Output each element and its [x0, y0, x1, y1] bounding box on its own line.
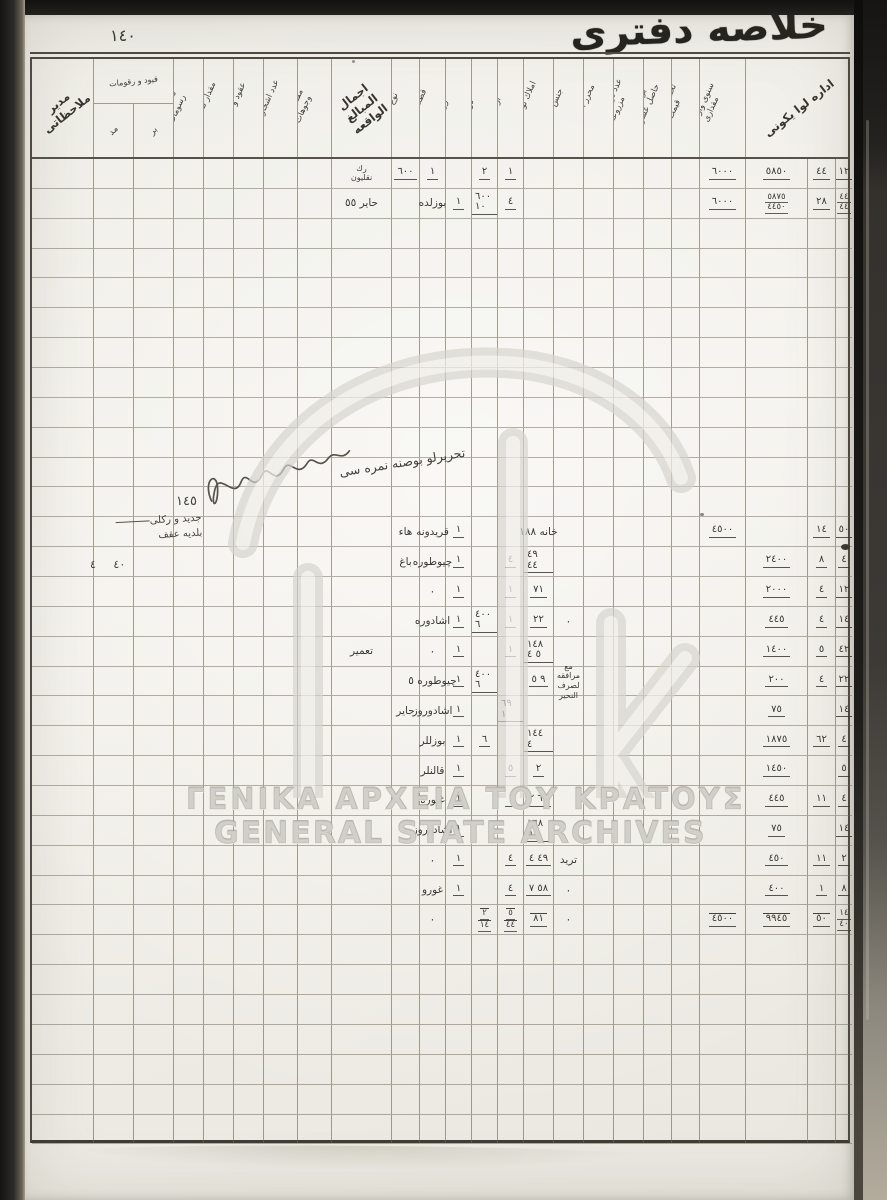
table-cell [174, 607, 204, 637]
table-cell [700, 338, 746, 368]
table-cell [420, 368, 446, 398]
table-cell: ١ [446, 637, 472, 667]
table-cell [584, 308, 614, 338]
table-cell [584, 398, 614, 428]
table-cell [584, 637, 614, 667]
table-cell [614, 756, 644, 786]
table-cell [498, 935, 524, 965]
table-cell [332, 219, 392, 249]
table-cell [584, 756, 614, 786]
table-cell: ١٤٨ ٥ ٤ [524, 637, 554, 667]
table-cell: ٦٠٠ [392, 159, 420, 189]
table-cell [746, 278, 808, 308]
table-cell [332, 577, 392, 607]
table-cell [298, 189, 332, 219]
table-cell [700, 1115, 746, 1145]
table-cell [584, 517, 614, 547]
table-cell [264, 846, 298, 876]
table-cell [392, 368, 420, 398]
table-cell [446, 1025, 472, 1055]
table-cell [174, 1055, 204, 1085]
table-cell [94, 159, 134, 189]
table-cell [746, 398, 808, 428]
table-cell [672, 1085, 700, 1115]
table-cell [264, 1115, 298, 1145]
table-cell [332, 308, 392, 338]
table-cell: ١٤ [836, 607, 852, 637]
table-cell [264, 995, 298, 1025]
table-cell [672, 1115, 700, 1145]
table-cell [264, 1025, 298, 1055]
table-cell [472, 1055, 498, 1085]
table-cell [234, 159, 264, 189]
table-cell [836, 487, 852, 517]
table-cell [700, 577, 746, 607]
table-cell [332, 368, 392, 398]
table-cell [746, 517, 808, 547]
column-subheader: مد [94, 104, 134, 157]
table-cell [498, 249, 524, 279]
table-cell [700, 487, 746, 517]
table-cell: ١ [498, 577, 524, 607]
table-cell [524, 219, 554, 249]
table-cell [836, 368, 852, 398]
table-cell [298, 249, 332, 279]
table-cell [264, 935, 298, 965]
table-cell: حاير ٥٥ [332, 189, 392, 219]
table-cell [204, 368, 234, 398]
table-cell [174, 846, 204, 876]
table-cell [584, 428, 614, 458]
table-cell [746, 965, 808, 995]
table-cell [332, 786, 392, 816]
column-header: مقدار تقسيمات [204, 59, 234, 157]
table-cell [332, 278, 392, 308]
table-cell: ١٢ [836, 577, 852, 607]
table-cell [554, 726, 584, 756]
table-cell [446, 308, 472, 338]
table-cell: ٧٥ [746, 696, 808, 726]
table-cell [264, 1085, 298, 1115]
table-cell [298, 159, 332, 189]
table-cell [298, 278, 332, 308]
table-cell [746, 995, 808, 1025]
table-cell [420, 458, 446, 488]
column-header: عدد اشجار زيتون [264, 59, 298, 157]
table-cell [836, 428, 852, 458]
table-cell: ٦٠٠٠ [700, 159, 746, 189]
table-cell [234, 696, 264, 726]
table-cell: ٤٠٠ ٦ [472, 607, 498, 637]
table-cell [204, 756, 234, 786]
table-cell: ٠ [420, 577, 446, 607]
table-cell [298, 1085, 332, 1115]
table-cell: اشادوروز [420, 696, 446, 726]
table-cell [524, 965, 554, 995]
table-cell [614, 1025, 644, 1055]
table-cell [204, 249, 234, 279]
table-cell [234, 786, 264, 816]
table-cell [614, 637, 644, 667]
table-cell [134, 667, 174, 697]
table-cell [174, 1085, 204, 1115]
table-cell [134, 1115, 174, 1145]
table-cell [644, 368, 672, 398]
table-cell [94, 219, 134, 249]
table-cell [134, 577, 174, 607]
table-cell [134, 786, 174, 816]
table-cell: ٢٢ [836, 667, 852, 697]
table-cell [472, 1115, 498, 1145]
table-cell [332, 547, 392, 577]
table-cell: ١ [446, 189, 472, 219]
table-cell [204, 965, 234, 995]
column-header: تخمين اولنان قيمت [672, 59, 700, 157]
table-cell [298, 219, 332, 249]
table-cell [298, 756, 332, 786]
table-cell: مع مرافقه لصرف النحير [554, 667, 584, 697]
table-cell: ٤ [808, 667, 836, 697]
table-cell [32, 159, 94, 189]
table-cell [94, 1115, 134, 1145]
table-cell [32, 816, 94, 846]
table-cell [420, 278, 446, 308]
table-cell: ١٦٨ ٥ [524, 816, 554, 846]
table-cell [134, 816, 174, 846]
table-cell [134, 995, 174, 1025]
table-cell [94, 308, 134, 338]
table-cell [32, 428, 94, 458]
table-cell [94, 398, 134, 428]
table-cell [204, 816, 234, 846]
table-cell [524, 159, 554, 189]
ink-speck [841, 544, 850, 550]
table-cell [672, 219, 700, 249]
table-cell [446, 428, 472, 458]
table-cell [234, 995, 264, 1025]
table-cell: ١٤٠٠ [746, 637, 808, 667]
table-cell [392, 249, 420, 279]
table-cell [264, 398, 298, 428]
table-cell [524, 1115, 554, 1145]
table-cell [32, 965, 94, 995]
table-cell [94, 756, 134, 786]
table-cell [204, 935, 234, 965]
table-cell [700, 428, 746, 458]
table-cell [298, 905, 332, 935]
table-cell [174, 726, 204, 756]
table-cell [644, 667, 672, 697]
table-cell [614, 458, 644, 488]
table-cell [392, 726, 420, 756]
table-cell: ٢ [472, 159, 498, 189]
table-cell [134, 1025, 174, 1055]
table-cell: ٥٨٧٥٤٤٥٠ [746, 189, 808, 219]
table-cell [554, 995, 584, 1025]
table-cell [746, 1055, 808, 1085]
table-cell [204, 398, 234, 428]
table-cell [584, 876, 614, 906]
table-cell [808, 487, 836, 517]
table-cell [174, 487, 204, 517]
table-cell [94, 667, 134, 697]
table-cell [420, 398, 446, 428]
table-cell [584, 965, 614, 995]
table-cell: چيوطوره [420, 547, 446, 577]
table-cell [672, 816, 700, 846]
table-cell: ٩٩٤٥ [746, 905, 808, 935]
scanned-ledger-page: خلاصه دفترى ١٤٠ مدير ملاحظاتىقيود و رقوم… [0, 0, 887, 1200]
table-cell [644, 1025, 672, 1055]
table-cell [644, 428, 672, 458]
table-cell [644, 607, 672, 637]
table-cell [32, 189, 94, 219]
table-cell [446, 398, 472, 428]
column-header: نوع محل [392, 59, 420, 157]
table-cell [584, 547, 614, 577]
table-cell [298, 816, 332, 846]
table-cell [614, 1055, 644, 1085]
scanner-edge-top [0, 0, 887, 15]
table-cell [672, 876, 700, 906]
table-cell: ٨١ [524, 905, 554, 935]
table-cell: ٥٠ [836, 517, 852, 547]
table-cell [472, 517, 498, 547]
table-cell [472, 756, 498, 786]
table-cell [700, 219, 746, 249]
table-cell [584, 786, 614, 816]
table-cell: ٤ [836, 547, 852, 577]
table-cell [472, 278, 498, 308]
table-cell [644, 308, 672, 338]
table-cell [134, 398, 174, 428]
table-cell [94, 637, 134, 667]
table-cell [672, 1055, 700, 1085]
table-cell: ٤ [498, 189, 524, 219]
table-cell [204, 696, 234, 726]
table-cell [808, 1115, 836, 1145]
table-cell [808, 249, 836, 279]
table-cell [234, 726, 264, 756]
table-cell [204, 876, 234, 906]
table-cell [498, 398, 524, 428]
table-cell [614, 995, 644, 1025]
table-cell [264, 1055, 298, 1085]
table-cell [32, 219, 94, 249]
table-cell [498, 278, 524, 308]
table-cell: ٩ ٥ [524, 667, 554, 697]
table-cell [174, 159, 204, 189]
table-cell [808, 278, 836, 308]
table-cell [264, 696, 298, 726]
table-cell [524, 1085, 554, 1115]
table-cell: ١ [498, 637, 524, 667]
table-cell [32, 278, 94, 308]
table-cell [332, 667, 392, 697]
table-cell [472, 965, 498, 995]
table-cell [204, 786, 234, 816]
table-cell [32, 458, 94, 488]
table-cell [472, 458, 498, 488]
table-cell [94, 189, 134, 219]
table-cell [498, 1085, 524, 1115]
table-cell [472, 487, 498, 517]
table-cell [234, 278, 264, 308]
table-cell [554, 696, 584, 726]
table-cell [332, 249, 392, 279]
table-cell: ١ [446, 756, 472, 786]
table-cell [614, 935, 644, 965]
table-cell [32, 398, 94, 428]
table-cell [524, 487, 554, 517]
table-cell [234, 756, 264, 786]
table-cell [264, 278, 298, 308]
table-cell [234, 1115, 264, 1145]
table-cell [644, 726, 672, 756]
table-cell [524, 935, 554, 965]
table-cell: ٧١ [524, 577, 554, 607]
table-cell [498, 1025, 524, 1055]
table-cell [32, 905, 94, 935]
table-cell [584, 159, 614, 189]
table-cell [700, 1085, 746, 1115]
table-cell [584, 905, 614, 935]
table-cell: ١١ [808, 786, 836, 816]
table-cell: ٥٨٥٠ [746, 159, 808, 189]
table-cell: ٦٩ ١ [498, 696, 524, 726]
table-cell [644, 876, 672, 906]
table-cell [264, 607, 298, 637]
table-cell [644, 935, 672, 965]
table-cell: ٤٥٠٠ [700, 905, 746, 935]
table-cell: ١٤٤ ٤ [524, 726, 554, 756]
table-cell [32, 368, 94, 398]
table-cell [332, 398, 392, 428]
table-cell [746, 308, 808, 338]
table-cell [836, 1085, 852, 1115]
table-cell [264, 637, 298, 667]
table-cell [174, 1025, 204, 1055]
table-cell [94, 726, 134, 756]
table-cell [614, 816, 644, 846]
table-cell [644, 965, 672, 995]
table-cell [498, 667, 524, 697]
table-cell [746, 487, 808, 517]
table-cell [234, 905, 264, 935]
table-cell [672, 726, 700, 756]
table-cell: ٠ [554, 905, 584, 935]
table-cell [134, 1055, 174, 1085]
table-cell [134, 368, 174, 398]
table-cell [614, 1085, 644, 1115]
table-cell [498, 338, 524, 368]
table-cell [392, 1025, 420, 1055]
table-cell [808, 398, 836, 428]
table-cell: ٢٠٠ [746, 667, 808, 697]
table-cell [94, 965, 134, 995]
table-cell [392, 1085, 420, 1115]
table-cell: ٤٤ [808, 159, 836, 189]
table-cell [614, 278, 644, 308]
table-cell [134, 696, 174, 726]
table-cell [174, 547, 204, 577]
table-cell [672, 547, 700, 577]
table-cell [134, 1085, 174, 1115]
table-cell [32, 1025, 94, 1055]
table-cell [392, 338, 420, 368]
table-cell: ٦ [472, 726, 498, 756]
table-cell [836, 1115, 852, 1145]
table-cell [174, 189, 204, 219]
table-cell [614, 905, 644, 935]
table-cell: ١٤٥٠ [746, 756, 808, 786]
table-header: مدير ملاحظاتىقيود و رقوماتمدبرتكاليف و ر… [32, 59, 848, 159]
table-cell [392, 189, 420, 219]
table-cell [672, 965, 700, 995]
table-cell [264, 786, 298, 816]
table-cell: ٠ [420, 905, 446, 935]
table-cell [498, 816, 524, 846]
table-cell [644, 786, 672, 816]
table-cell [204, 726, 234, 756]
table-cell [584, 219, 614, 249]
table-cell [234, 308, 264, 338]
table-cell [614, 577, 644, 607]
table-cell [94, 1055, 134, 1085]
table-cell [332, 1085, 392, 1115]
table-cell [446, 1055, 472, 1085]
table-cell [836, 935, 852, 965]
table-cell [808, 935, 836, 965]
table-cell [134, 637, 174, 667]
table-cell [298, 517, 332, 547]
table-cell [672, 607, 700, 637]
table-cell [174, 816, 204, 846]
table-cell [584, 607, 614, 637]
table-cell [554, 1085, 584, 1115]
table-cell [700, 876, 746, 906]
table-cell: ١ [498, 786, 524, 816]
table-cell [472, 428, 498, 458]
table-cell: ١ [808, 876, 836, 906]
table-cell [32, 577, 94, 607]
table-cell [298, 577, 332, 607]
table-cell [472, 696, 498, 726]
table-cell [332, 696, 392, 726]
table-cell [298, 786, 332, 816]
table-cell [332, 1115, 392, 1145]
table-cell [584, 995, 614, 1025]
table-cell: ١٨٧٥ [746, 726, 808, 756]
table-cell: ٤ [836, 786, 852, 816]
table-cell [584, 1055, 614, 1085]
table-cell [174, 905, 204, 935]
table-cell [672, 458, 700, 488]
table-cell [446, 995, 472, 1025]
table-cell [808, 458, 836, 488]
table-cell [554, 935, 584, 965]
table-cell [392, 756, 420, 786]
table-cell [32, 756, 94, 786]
table-cell: چيوطوره ٥ [420, 667, 446, 697]
table-cell [264, 905, 298, 935]
table-cell: ٠ [554, 876, 584, 906]
table-cell: ٠ [420, 846, 446, 876]
table-cell [204, 159, 234, 189]
table-cell [264, 577, 298, 607]
table-cell [204, 667, 234, 697]
table-cell [672, 159, 700, 189]
